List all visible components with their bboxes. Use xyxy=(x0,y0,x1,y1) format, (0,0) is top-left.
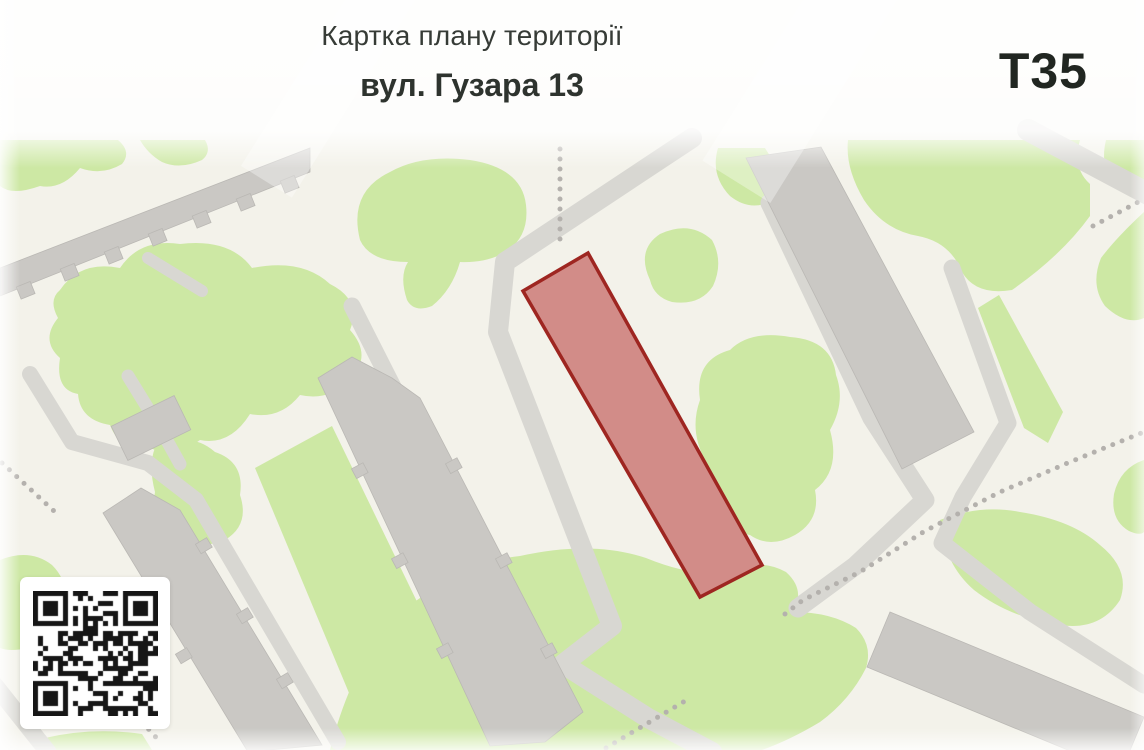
right-fade xyxy=(1130,0,1144,750)
left-fade xyxy=(0,0,20,750)
qr-card xyxy=(20,577,170,729)
territory-plan-card: Картка плану території вул. Гузара 13 Т3… xyxy=(0,0,1144,750)
header-fade xyxy=(0,0,1144,168)
green-area xyxy=(645,228,718,302)
plan-code-badge: Т35 xyxy=(999,42,1088,100)
bottom-fade xyxy=(0,728,1144,750)
map-canvas xyxy=(0,0,1144,750)
qr-code xyxy=(33,591,158,716)
